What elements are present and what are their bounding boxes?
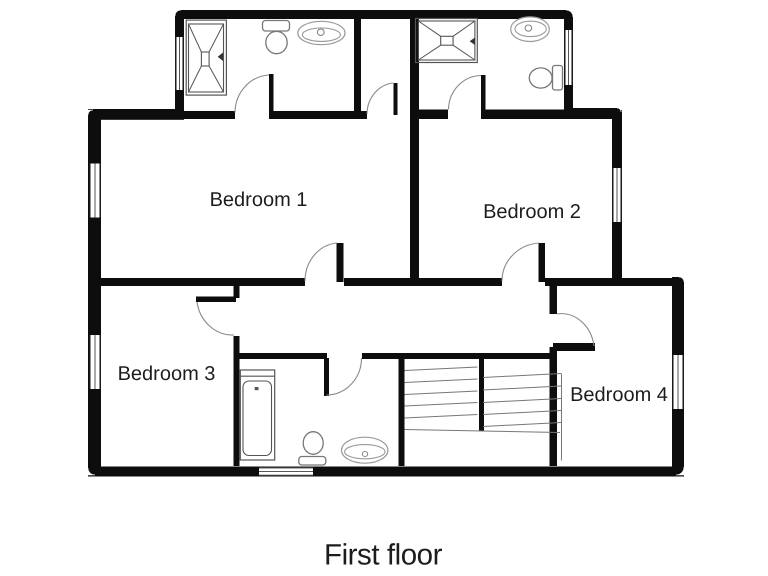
svg-text:Bedroom 3: Bedroom 3: [118, 363, 216, 385]
svg-text:Bedroom 2: Bedroom 2: [483, 201, 581, 223]
svg-text:First floor: First floor: [324, 539, 443, 572]
svg-text:Bedroom 4: Bedroom 4: [570, 384, 668, 406]
svg-text:Bedroom 1: Bedroom 1: [210, 189, 308, 211]
